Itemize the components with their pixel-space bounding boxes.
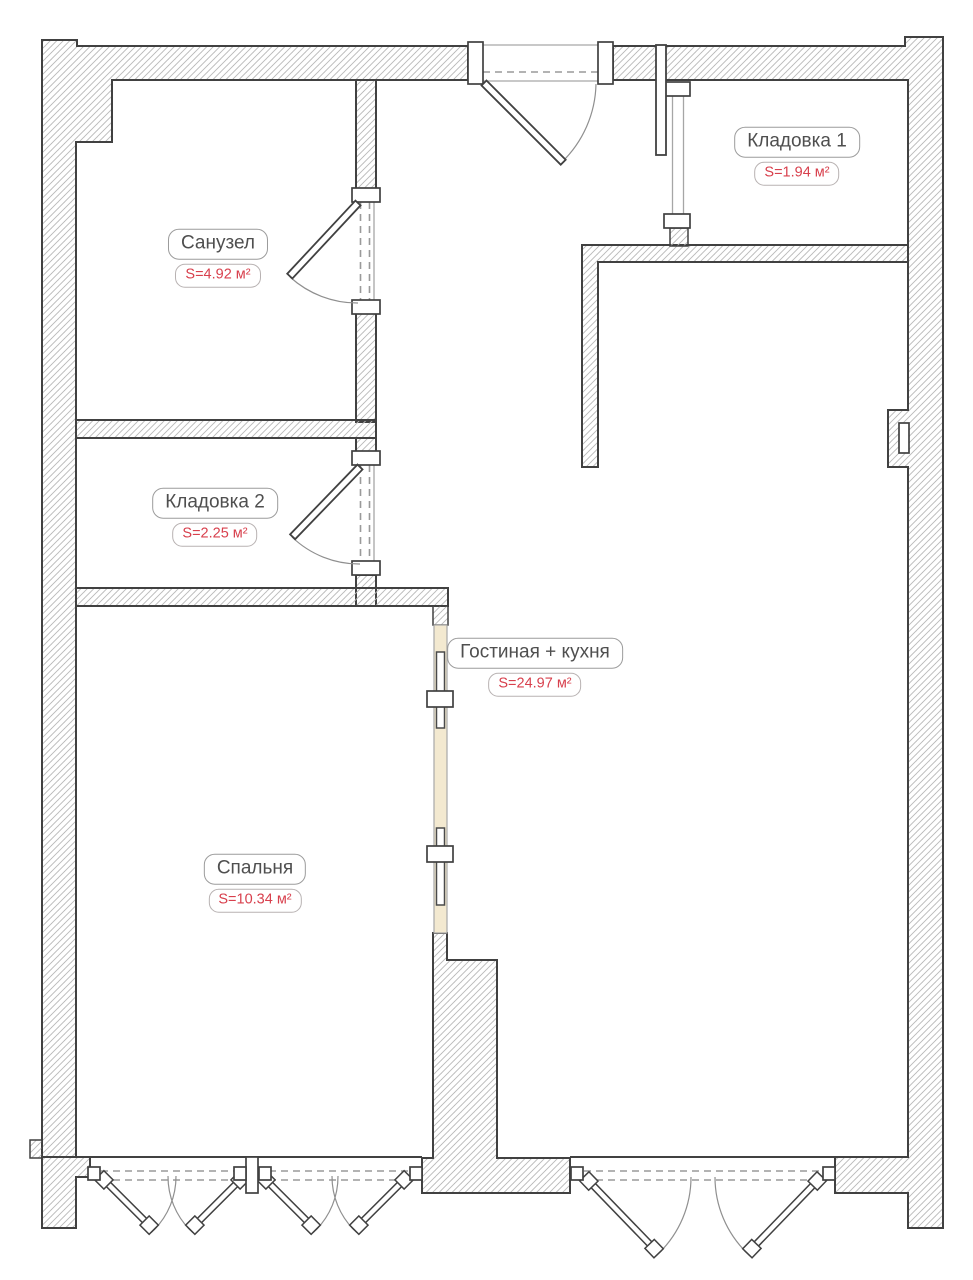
- entrance-door-leaf: [482, 81, 566, 165]
- niche-slot: [899, 423, 909, 453]
- entrance-door: [482, 81, 596, 165]
- sliding-door-panel-bottom: [437, 828, 445, 905]
- storage2-door-leaf: [290, 465, 362, 540]
- door-jambs: [352, 42, 909, 575]
- window-jamb-square: [571, 1167, 583, 1180]
- room-label-kladovka2: Кладовка 2 S=2.25 м²: [152, 488, 278, 547]
- storage1-jamb-bottom: [664, 214, 690, 228]
- room-label-spalnya: Спальня S=10.34 м²: [204, 854, 306, 913]
- wall-bathroom-right-lower: [356, 313, 376, 422]
- room-area: S=10.34 м²: [208, 888, 301, 912]
- room-name: Кладовка 2: [152, 488, 278, 519]
- sliding-door-panel-top: [437, 652, 445, 728]
- storage2-jamb-top: [352, 451, 380, 465]
- sash: [580, 1172, 664, 1258]
- wall-bathroom-bottom: [76, 420, 376, 438]
- storage1-door-leaf: [656, 45, 666, 155]
- room-name: Санузел: [168, 229, 268, 260]
- sash-arc: [316, 1176, 338, 1230]
- sash-arc: [332, 1176, 354, 1230]
- bathroom-door-leaf: [287, 201, 360, 279]
- storage2-jamb-bottom: [352, 561, 380, 575]
- wall-outer-right-top: [613, 37, 943, 1228]
- floor-plan-page: Санузел S=4.92 м² Кладовка 1 S=1.94 м² К…: [0, 0, 973, 1280]
- living-window: [580, 1172, 827, 1258]
- room-name: Спальня: [204, 854, 306, 885]
- doors: [287, 45, 666, 564]
- wall-hall-L: [582, 245, 908, 467]
- window-jamb-square: [410, 1167, 422, 1180]
- storage2-door: [290, 465, 362, 564]
- sash: [743, 1172, 827, 1258]
- wall-storage2-bottom: [76, 588, 448, 606]
- walls: [30, 37, 943, 1228]
- entrance-door-arc: [562, 84, 596, 162]
- bathroom-jamb-top: [352, 188, 380, 202]
- wall-sliding-connector: [433, 606, 448, 625]
- bathroom-jamb-bottom: [352, 300, 380, 314]
- window-jamb-square: [823, 1167, 835, 1180]
- room-area: S=4.92 м²: [175, 263, 260, 287]
- room-area: S=2.25 м²: [172, 522, 257, 546]
- sash-arc: [715, 1177, 747, 1253]
- room-label-kladovka1: Кладовка 1 S=1.94 м²: [734, 127, 860, 186]
- wall-bathroom-right-upper: [356, 80, 376, 190]
- wall-storage1-left-piece: [670, 228, 688, 246]
- wall-corner-bottom-left: [42, 1157, 90, 1228]
- storage1-jamb-top: [664, 82, 690, 96]
- window-jamb-square: [259, 1167, 271, 1180]
- storage2-door-arc: [292, 537, 360, 564]
- room-area: S=1.94 м²: [754, 161, 839, 185]
- entrance-jamb-left: [468, 42, 483, 84]
- room-name: Кладовка 1: [734, 127, 860, 158]
- bathroom-door-arc: [290, 277, 358, 303]
- room-area: S=24.97 м²: [488, 672, 581, 696]
- window-jamb-square: [88, 1167, 100, 1180]
- bathroom-door: [287, 201, 360, 303]
- room-name: Гостиная + кухня: [447, 638, 623, 669]
- sash-arc: [659, 1177, 691, 1253]
- wall-bedroom-divider: [422, 933, 570, 1193]
- wall-outer-left-tab: [30, 1140, 42, 1158]
- sliding-door-jamb-bottom: [427, 846, 453, 862]
- window-jamb-square: [234, 1167, 246, 1180]
- window-mullion-post: [246, 1157, 258, 1193]
- room-label-gostinaya: Гостиная + кухня S=24.97 м²: [447, 638, 623, 697]
- entrance-jamb-right: [598, 42, 613, 84]
- room-label-sanuzel: Санузел S=4.92 м²: [168, 229, 268, 288]
